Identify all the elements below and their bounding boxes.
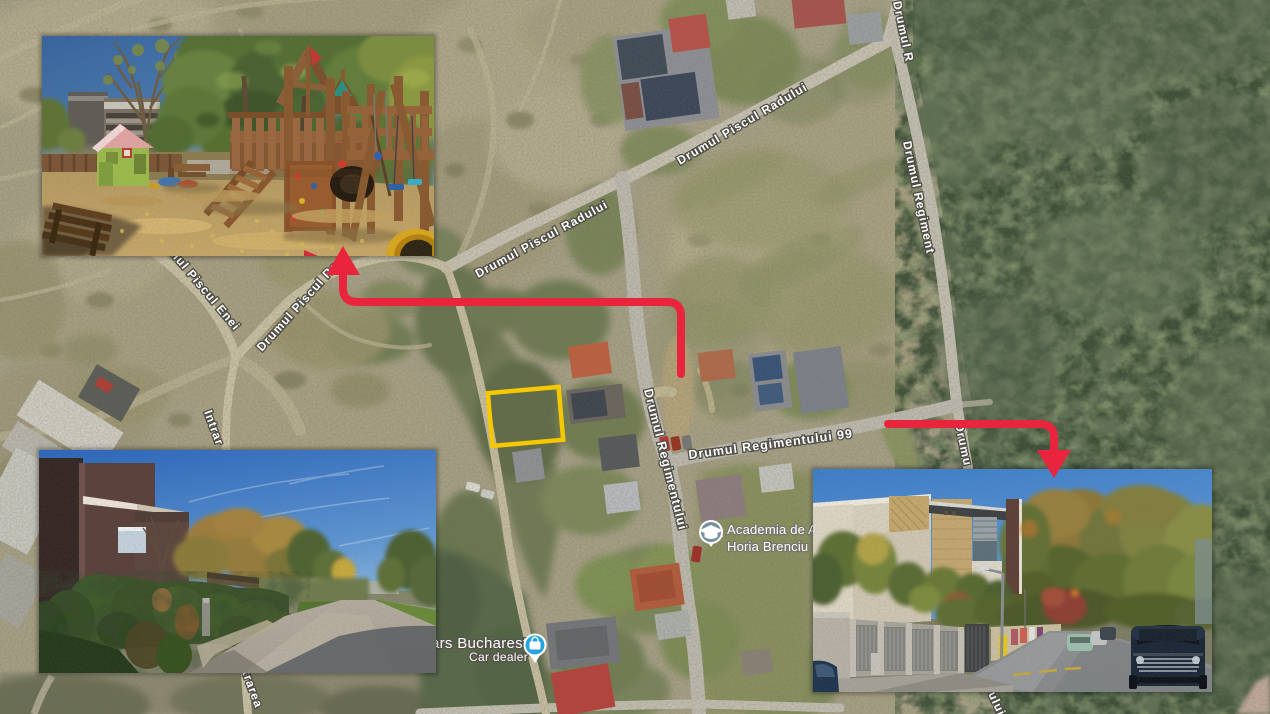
svg-text:Car dealer: Car dealer [469, 650, 528, 664]
svg-text:Horia Brenciu: Horia Brenciu [727, 539, 808, 554]
svg-text:Academia de A: Academia de A [727, 522, 817, 537]
